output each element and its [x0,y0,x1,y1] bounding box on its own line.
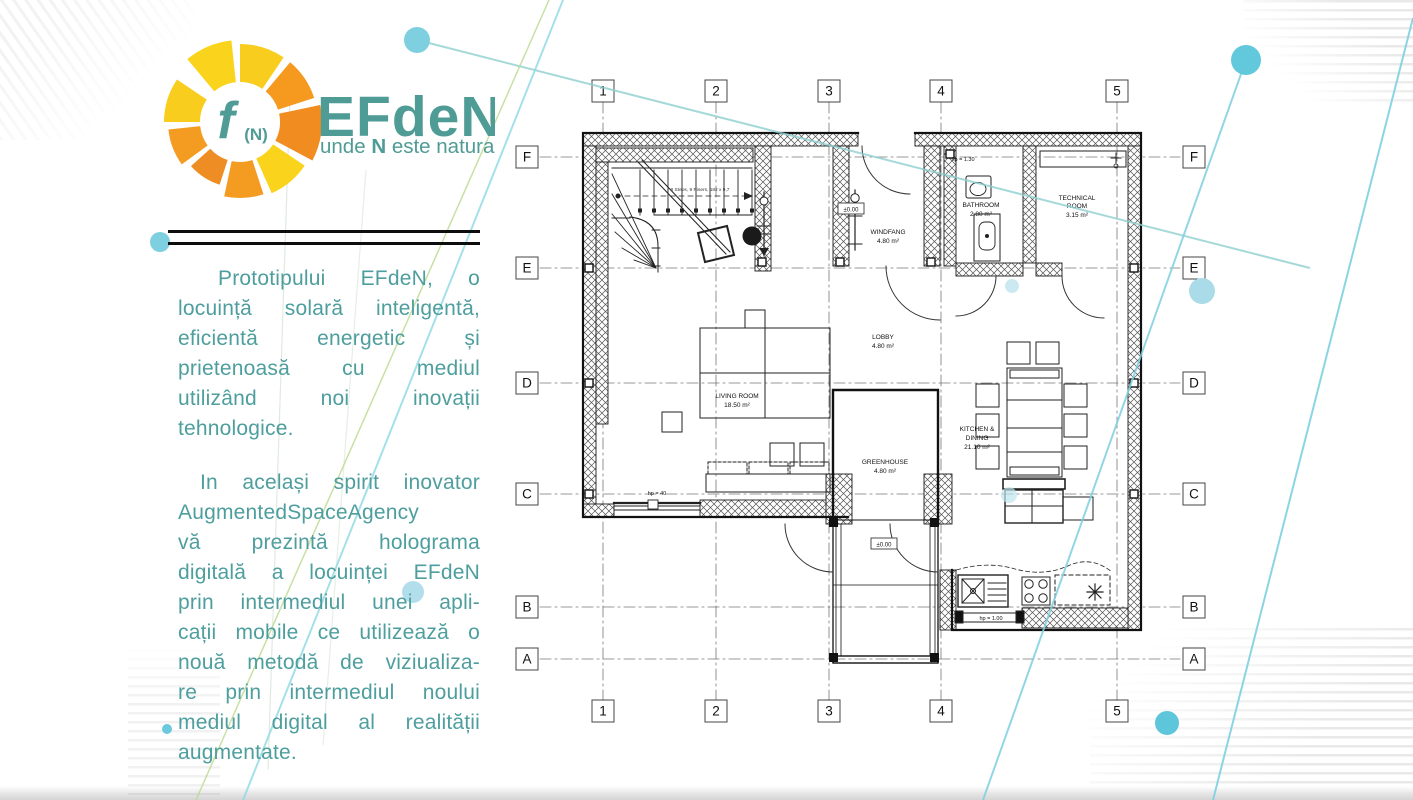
text-line: mediul digital al realității [178,708,480,738]
text-line: tehnologice. [178,414,480,444]
decor-dot [162,724,172,734]
greenhouse-structure [829,390,939,663]
sunburst-petal [164,80,207,122]
text-line: Prototipului EFdeN, o [178,264,480,294]
text-line: AugmentedSpaceAgency [178,498,480,528]
logo-n-paren: (N) [244,125,268,144]
text-line: digitală a locuinței EFdeN [178,558,480,588]
decor-dot [1001,487,1017,503]
annotation-hp130: hp = 1.30 [951,157,974,163]
decor-dot [1155,711,1179,735]
slide: 1122334455FFEEDDCCBBAA [0,0,1413,800]
room-label: 4.80 m² [877,238,900,245]
text-line: prin intermediul unei apli- [178,588,480,618]
grid-row-label-text: C [522,487,532,502]
text-line: In același spirit inovator [178,468,480,498]
level-marker-text: ±0.00 [844,208,860,214]
grid-col-label-text: 4 [937,84,945,99]
grid-col-label-text: 3 [825,84,833,99]
text-line: utilizând noi inovații [178,384,480,414]
grid-col-label-text: 3 [825,704,833,719]
room-label: KITCHEN & [960,426,995,433]
intro-paragraph-1: Prototipului EFdeN, o locuință solară in… [178,264,480,444]
room-label: TECHNICAL [1059,195,1096,202]
intro-paragraph-2: In același spirit inovator AugmentedSpac… [178,468,480,768]
room-label: 18.50 m² [724,402,750,409]
grid-row-label-text: D [1189,376,1199,391]
text-line: eficientă energetic și [178,324,480,354]
grid-row-label-text: B [522,600,531,615]
decor-dot [150,232,170,252]
grid-col-label-text: 4 [937,704,945,719]
grid-col-label-text: 2 [712,704,720,719]
room-label: 2.80 m² [970,211,993,218]
grid-row-label-text: F [523,150,531,165]
grid-row-label-text: F [1190,150,1198,165]
text-line: vă prezintă holograma [178,528,480,558]
fridge-star-icon [1087,584,1103,600]
grid-row-label-text: D [522,376,532,391]
stair-note: 8 Steps, 9 Risers, 182 x 9,7 [671,187,730,193]
floor-plan: 1122334455FFEEDDCCBBAA [516,80,1205,722]
plan-windows [614,500,1024,623]
grid-row-label-text: A [1189,652,1198,667]
room-label: LOBBY [872,334,894,341]
grid-row-label-text: E [1189,261,1198,276]
grid-col-label-text: 1 [599,704,607,719]
kitchen-counter [950,562,1112,607]
text-line: re prin intermediul noului [178,678,480,708]
grid-row-label-text: C [1189,487,1199,502]
efden-logo: f (N) EFdeN unde N este natura [150,40,495,215]
room-label: LIVING ROOM [715,393,758,400]
room-labels: WINDFANG 4.80 m² BATHROOM 2.80 m² TECHNI… [715,195,1095,475]
grid-col-label-text: 5 [1113,704,1121,719]
grid-row-label-text: A [522,652,531,667]
decor-dot [1231,45,1261,75]
grid-col-label-text: 2 [712,84,720,99]
room-label: 3.15 m² [1066,212,1089,219]
room-label: DINING [966,435,989,442]
room-label: 21.10 m² [964,444,990,451]
decor-dot [1005,279,1019,293]
logo-tagline: unde N este natura [320,135,495,158]
grid-row-label-text: E [522,261,531,276]
text-line: cații mobile ce utilizează o [178,618,480,648]
sunburst-petal [187,40,236,91]
grid-row-label-text: B [1189,600,1198,615]
text-line: augmentate. [178,738,480,768]
room-label: GREENHOUSE [862,459,909,466]
decor-dot [1189,278,1215,304]
grid-col-label-text: 1 [599,84,607,99]
text-line: locuință solară inteligentă, [178,294,480,324]
annotation-hp40: hp = 40 [648,491,667,497]
living-room-furniture [662,310,830,492]
room-label: BATHROOM [962,202,999,209]
room-label: 4.80 m² [872,343,895,350]
annotation-hp100: hp = 1.00 [979,616,1002,622]
sunburst-petal [224,160,263,198]
text-line: nouă metodă de viziualiza- [178,648,480,678]
room-label: WINDFANG [870,229,905,236]
room-label: 4.80 m² [874,468,897,475]
column-dot [743,227,762,246]
text-line: prietenoasă cu mediul [178,354,480,384]
level-marker-text: ±0.00 [877,543,893,549]
grid-col-label-text: 5 [1113,84,1121,99]
sunburst-center [203,85,277,159]
divider-rule [168,230,480,245]
